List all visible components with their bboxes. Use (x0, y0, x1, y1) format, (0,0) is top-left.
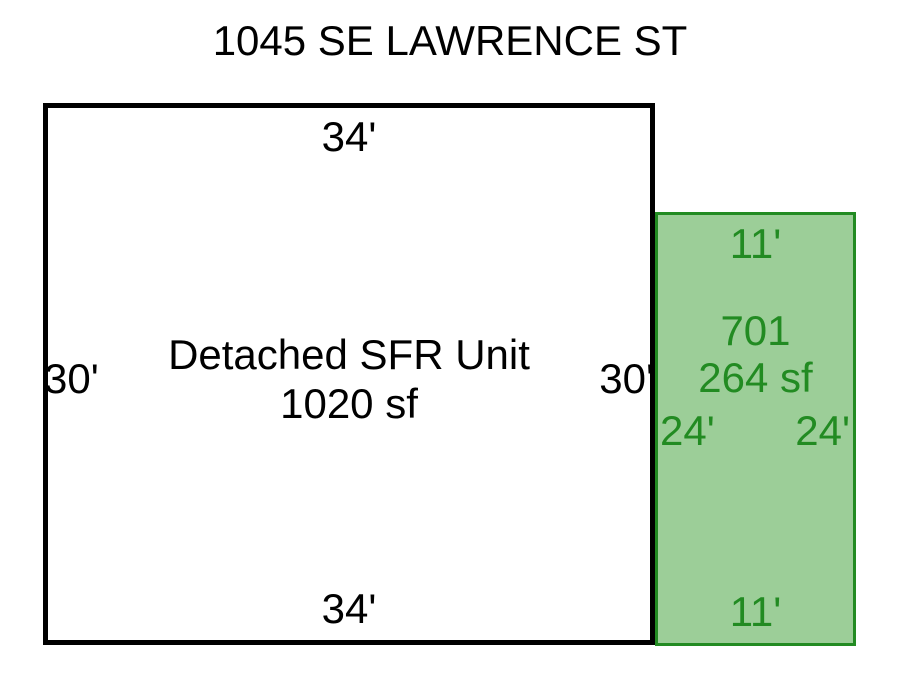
main-unit-label: Detached SFR Unit 1020 sf (48, 330, 650, 428)
addition-dim-left: 24' (660, 410, 715, 452)
addition-id: 701 (658, 307, 853, 354)
addition-rect: 11' 701 264 sf 24' 24' 11' (655, 212, 856, 646)
page-title: 1045 SE LAWRENCE ST (0, 20, 900, 62)
main-unit-dim-top: 34' (48, 116, 650, 158)
addition-dim-top: 11' (658, 223, 853, 265)
addition-label: 701 264 sf (658, 307, 853, 401)
main-unit-name: Detached SFR Unit (48, 330, 650, 379)
addition-dim-bottom: 11' (658, 591, 853, 633)
main-unit-rect: 34' 30' 30' 34' Detached SFR Unit 1020 s… (43, 103, 655, 645)
main-unit-area: 1020 sf (48, 379, 650, 428)
sketch-canvas: 1045 SE LAWRENCE ST 34' 30' 30' 34' Deta… (0, 0, 900, 675)
main-unit-dim-bottom: 34' (48, 588, 650, 630)
addition-area: 264 sf (658, 354, 853, 401)
addition-dim-right: 24' (795, 410, 850, 452)
